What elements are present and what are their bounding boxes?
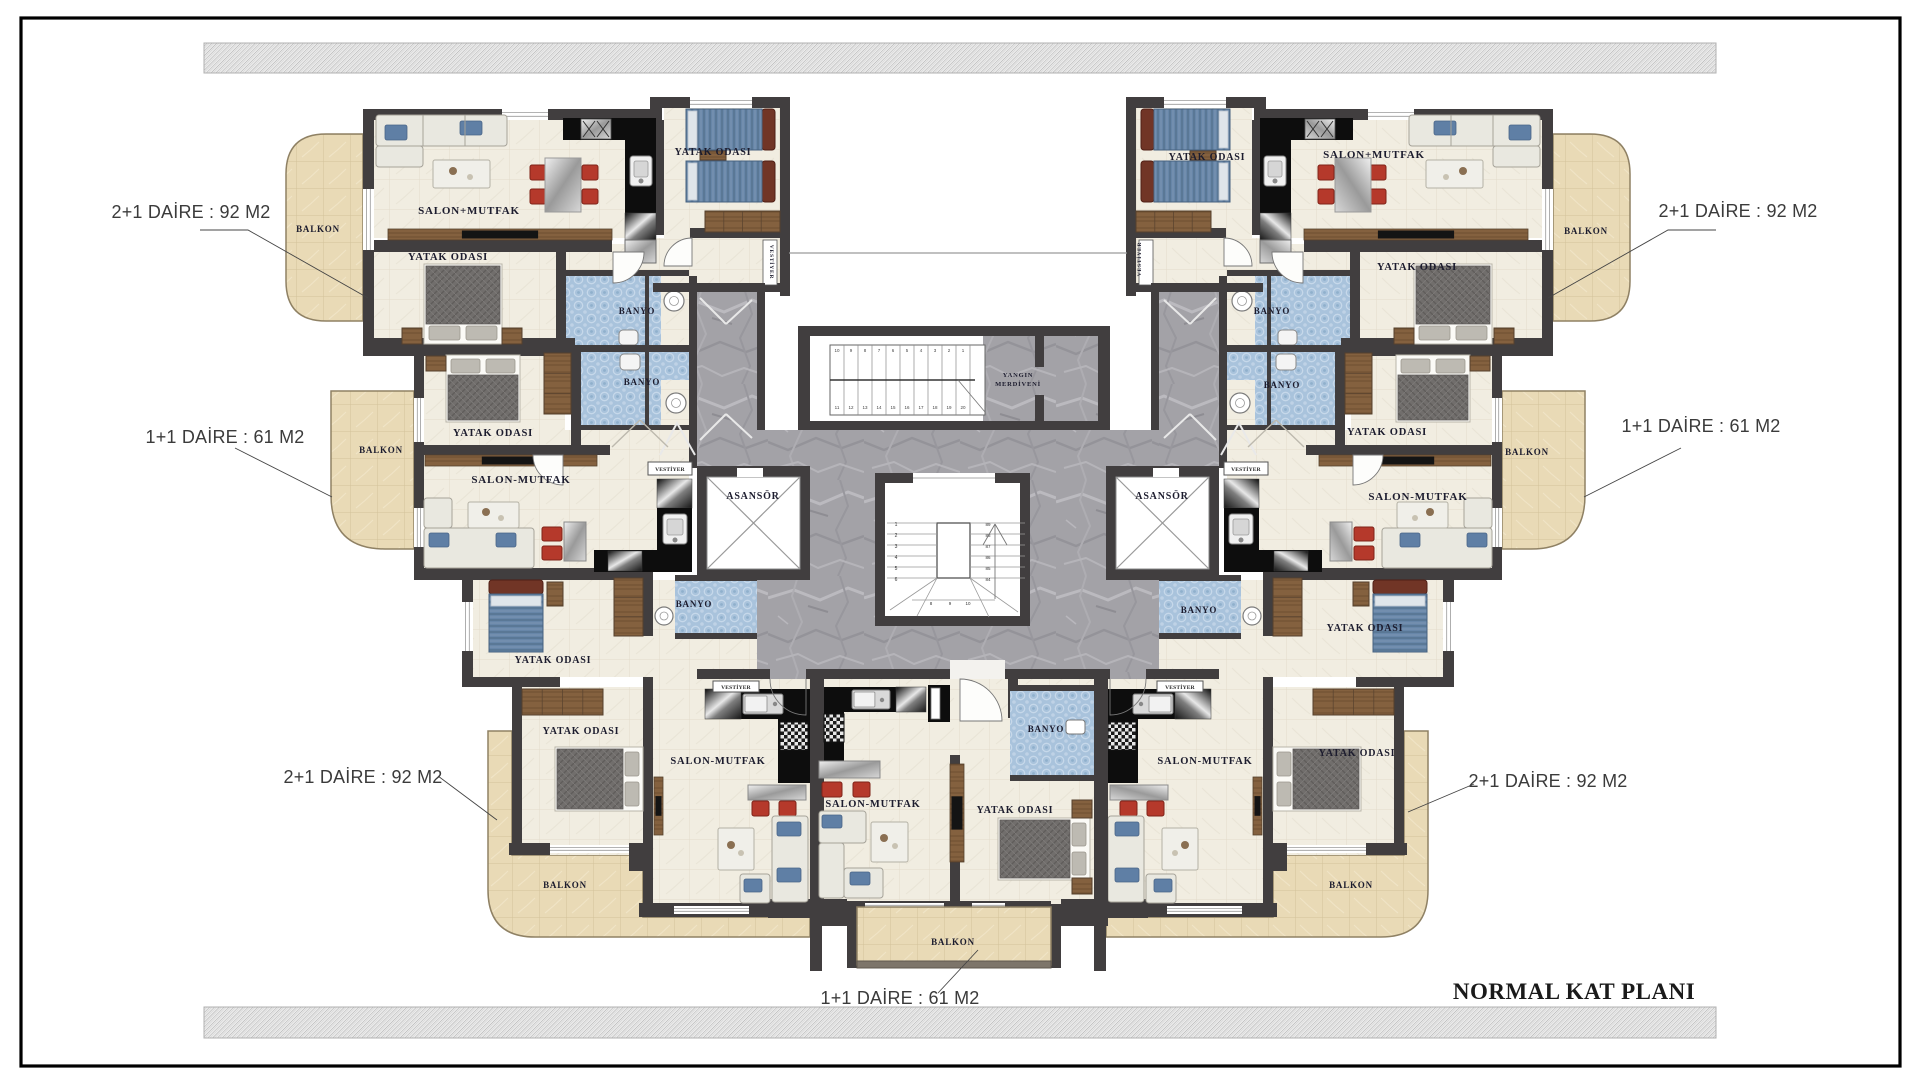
svg-text:VESTİYER: VESTİYER — [768, 245, 775, 280]
svg-text:VESTİYER: VESTİYER — [721, 684, 752, 691]
svg-text:YATAK ODASI: YATAK ODASI — [1327, 623, 1404, 634]
svg-text:BANYO: BANYO — [619, 306, 656, 316]
svg-text:VESTİYER: VESTİYER — [1231, 466, 1262, 473]
svg-text:2: 2 — [895, 533, 898, 539]
svg-text:SALON-MUTFAK: SALON-MUTFAK — [825, 799, 920, 810]
svg-text:BANYO: BANYO — [1181, 605, 1218, 615]
svg-text:1: 1 — [895, 522, 898, 528]
svg-text:YATAK ODASI: YATAK ODASI — [1347, 427, 1427, 438]
svg-text:YATAK ODASI: YATAK ODASI — [408, 252, 488, 263]
svg-text:SALON-MUTFAK: SALON-MUTFAK — [670, 756, 765, 767]
svg-text:YATAK ODASI: YATAK ODASI — [453, 428, 533, 439]
svg-text:VESTİYER: VESTİYER — [1136, 242, 1143, 277]
svg-text:85: 85 — [985, 566, 991, 571]
svg-text:87: 87 — [985, 544, 991, 549]
svg-text:VESTİYER: VESTİYER — [1165, 684, 1196, 691]
svg-text:BALKON: BALKON — [1329, 880, 1373, 890]
svg-text:BALKON: BALKON — [1505, 447, 1549, 457]
svg-text:YATAK ODASI: YATAK ODASI — [543, 726, 620, 737]
svg-text:YATAK ODASI: YATAK ODASI — [1319, 748, 1396, 759]
svg-text:SALON+MUTFAK: SALON+MUTFAK — [418, 205, 520, 217]
svg-text:1+1 DAİRE : 61 M2: 1+1 DAİRE : 61 M2 — [821, 988, 980, 1008]
svg-text:NORMAL KAT PLANI: NORMAL KAT PLANI — [1453, 979, 1695, 1004]
svg-text:BANYO: BANYO — [1028, 724, 1065, 734]
svg-text:5: 5 — [895, 566, 898, 572]
svg-text:89: 89 — [985, 522, 991, 527]
svg-text:BALKON: BALKON — [543, 880, 587, 890]
svg-text:12: 12 — [848, 405, 854, 410]
svg-text:4: 4 — [895, 555, 898, 561]
svg-text:11: 11 — [835, 405, 840, 410]
svg-text:2+1 DAİRE : 92 M2: 2+1 DAİRE : 92 M2 — [112, 202, 271, 222]
svg-text:SALON-MUTFAK: SALON-MUTFAK — [1368, 491, 1467, 503]
svg-text:ASANSÖR: ASANSÖR — [726, 489, 779, 502]
svg-text:15: 15 — [890, 405, 896, 410]
svg-text:BALKON: BALKON — [931, 937, 975, 947]
svg-text:VESTİYER: VESTİYER — [655, 466, 686, 473]
svg-text:6: 6 — [895, 577, 898, 583]
svg-text:13: 13 — [862, 405, 868, 410]
svg-text:10: 10 — [834, 348, 840, 353]
svg-text:SALON+MUTFAK: SALON+MUTFAK — [1323, 149, 1425, 161]
svg-text:19: 19 — [946, 405, 952, 410]
svg-text:14: 14 — [876, 405, 882, 410]
svg-text:84: 84 — [985, 577, 991, 582]
svg-text:YANGIN: YANGIN — [1003, 372, 1034, 379]
svg-text:YATAK ODASI: YATAK ODASI — [1169, 152, 1246, 163]
svg-text:YATAK ODASI: YATAK ODASI — [1377, 262, 1457, 273]
svg-text:1+1 DAİRE : 61 M2: 1+1 DAİRE : 61 M2 — [146, 427, 305, 447]
svg-text:17: 17 — [918, 405, 924, 410]
svg-text:16: 16 — [904, 405, 910, 410]
svg-text:BANYO: BANYO — [1254, 306, 1291, 316]
svg-text:2+1 DAİRE : 92 M2: 2+1 DAİRE : 92 M2 — [1469, 771, 1628, 791]
svg-text:BALKON: BALKON — [1564, 226, 1608, 236]
svg-text:1+1 DAİRE : 61 M2: 1+1 DAİRE : 61 M2 — [1622, 416, 1781, 436]
svg-text:BALKON: BALKON — [359, 445, 403, 455]
svg-text:YATAK ODASI: YATAK ODASI — [675, 147, 752, 158]
svg-text:ASANSÖR: ASANSÖR — [1135, 489, 1188, 502]
svg-text:BANYO: BANYO — [676, 599, 713, 609]
svg-text:2+1 DAİRE : 92 M2: 2+1 DAİRE : 92 M2 — [284, 767, 443, 787]
svg-text:10: 10 — [965, 601, 971, 606]
svg-text:3: 3 — [895, 544, 898, 550]
svg-text:BANYO: BANYO — [1264, 380, 1301, 390]
svg-text:18: 18 — [932, 405, 938, 410]
svg-text:86: 86 — [985, 555, 991, 560]
svg-text:MERDİVENİ: MERDİVENİ — [995, 381, 1041, 388]
svg-text:BALKON: BALKON — [296, 224, 340, 234]
svg-text:SALON-MUTFAK: SALON-MUTFAK — [1157, 756, 1252, 767]
svg-text:BANYO: BANYO — [624, 377, 661, 387]
svg-text:YATAK ODASI: YATAK ODASI — [977, 805, 1054, 816]
svg-text:20: 20 — [960, 405, 966, 410]
svg-text:SALON-MUTFAK: SALON-MUTFAK — [471, 474, 570, 486]
svg-text:YATAK ODASI: YATAK ODASI — [515, 655, 592, 666]
svg-text:2+1 DAİRE : 92 M2: 2+1 DAİRE : 92 M2 — [1659, 201, 1818, 221]
